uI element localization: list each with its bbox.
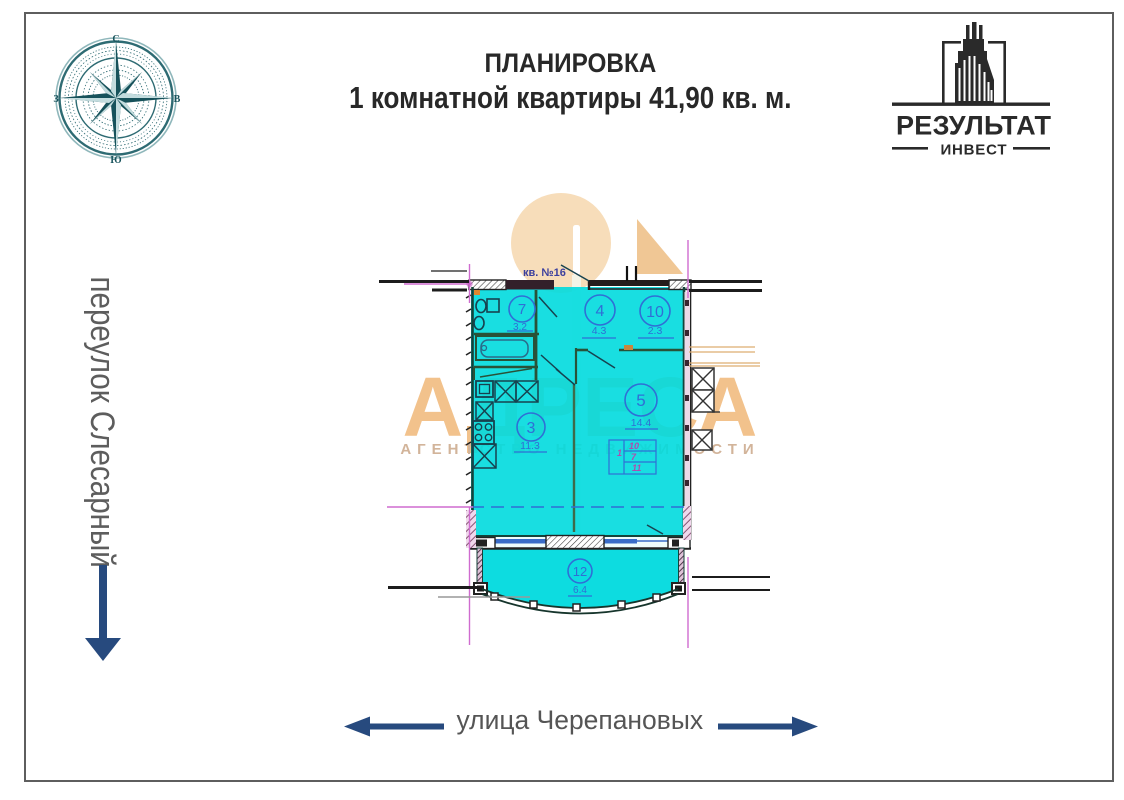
- svg-text:11: 11: [632, 463, 641, 473]
- svg-text:14.4: 14.4: [631, 417, 652, 429]
- svg-text:В: В: [174, 94, 181, 105]
- svg-text:11.3: 11.3: [520, 440, 540, 452]
- svg-text:3: 3: [527, 420, 536, 437]
- svg-text:6.4: 6.4: [573, 585, 587, 596]
- svg-text:12: 12: [573, 564, 587, 579]
- svg-text:ИНВЕСТ: ИНВЕСТ: [941, 142, 1007, 159]
- svg-text:кв. №16: кв. №16: [523, 267, 566, 279]
- svg-text:4.3: 4.3: [592, 325, 607, 337]
- svg-text:7: 7: [518, 301, 526, 318]
- svg-text:З: З: [53, 94, 58, 105]
- svg-text:10: 10: [629, 441, 639, 451]
- svg-text:1: 1: [617, 448, 622, 458]
- svg-text:10: 10: [646, 304, 664, 321]
- svg-text:5: 5: [636, 391, 645, 410]
- svg-text:С: С: [112, 34, 119, 45]
- svg-text:Ю: Ю: [110, 155, 121, 164]
- svg-text:4: 4: [596, 303, 605, 320]
- svg-text:РЕЗУЛЬТАТ: РЕЗУЛЬТАТ: [896, 111, 1052, 141]
- svg-text:2.3: 2.3: [648, 325, 663, 337]
